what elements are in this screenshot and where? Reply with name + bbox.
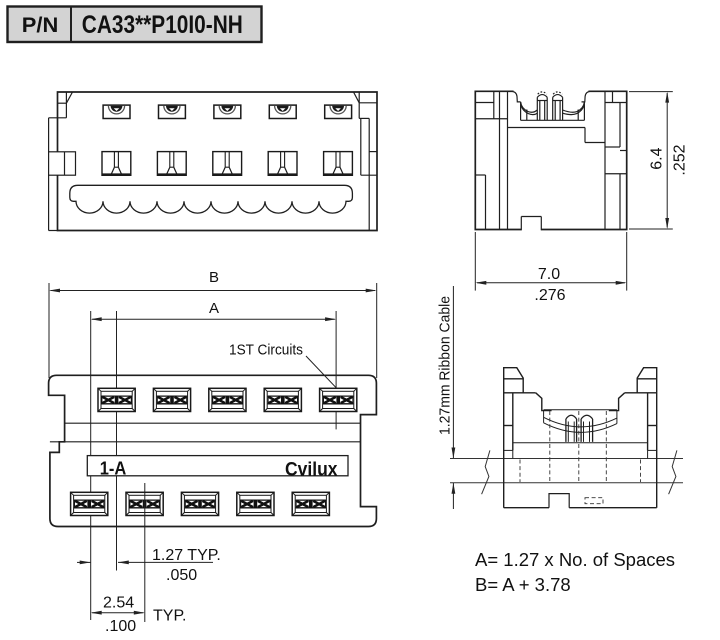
svg-text:6.4: 6.4 (649, 147, 666, 169)
svg-text:TYP.: TYP. (153, 608, 187, 625)
svg-text:.252: .252 (672, 144, 689, 175)
svg-text:1.27 TYP.: 1.27 TYP. (152, 547, 221, 564)
svg-text:B= A + 3.78: B= A + 3.78 (475, 574, 571, 595)
svg-text:.276: .276 (534, 287, 565, 304)
svg-text:Cvilux: Cvilux (285, 460, 338, 481)
svg-text:.050: .050 (166, 567, 197, 584)
svg-text:CA33**P10I0-NH: CA33**P10I0-NH (82, 11, 243, 39)
svg-text:1ST Circuits: 1ST Circuits (229, 342, 303, 359)
svg-text:A= 1.27 x No. of Spaces: A= 1.27 x No. of Spaces (475, 549, 675, 570)
svg-text:1.27mm Ribbon Cable: 1.27mm Ribbon Cable (437, 296, 454, 435)
svg-text:.100: .100 (105, 618, 136, 635)
svg-text:B: B (209, 269, 219, 286)
svg-text:1-A: 1-A (100, 458, 127, 479)
svg-text:2.54: 2.54 (103, 594, 134, 611)
svg-text:7.0: 7.0 (538, 266, 560, 283)
svg-text:A: A (209, 300, 219, 317)
svg-text:P/N: P/N (22, 13, 59, 37)
